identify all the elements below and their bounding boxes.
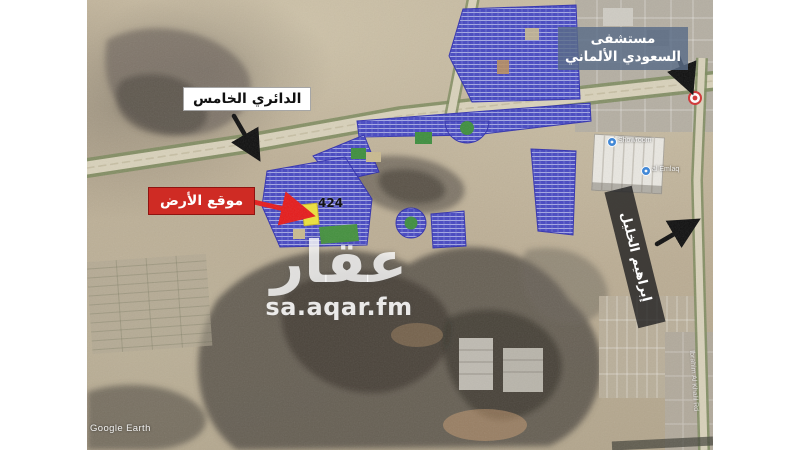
showroom-poi-label: Showroom bbox=[618, 137, 651, 144]
parcel-number-label: 424 bbox=[318, 196, 343, 212]
land-location-label: موقع الأرض bbox=[148, 187, 255, 215]
emlaq-poi-label: al Emlaq bbox=[652, 166, 679, 173]
hospital-label: مستشفى السعودي الألماني bbox=[558, 27, 688, 70]
google-earth-attribution: Google Earth bbox=[90, 423, 151, 434]
listing-image-frame: الدائري الخامس موقع الأرض مستشفى السعودي… bbox=[0, 0, 800, 450]
satellite-map-image: الدائري الخامس موقع الأرض مستشفى السعودي… bbox=[87, 0, 713, 450]
ring-road-label: الدائري الخامس bbox=[183, 87, 311, 111]
